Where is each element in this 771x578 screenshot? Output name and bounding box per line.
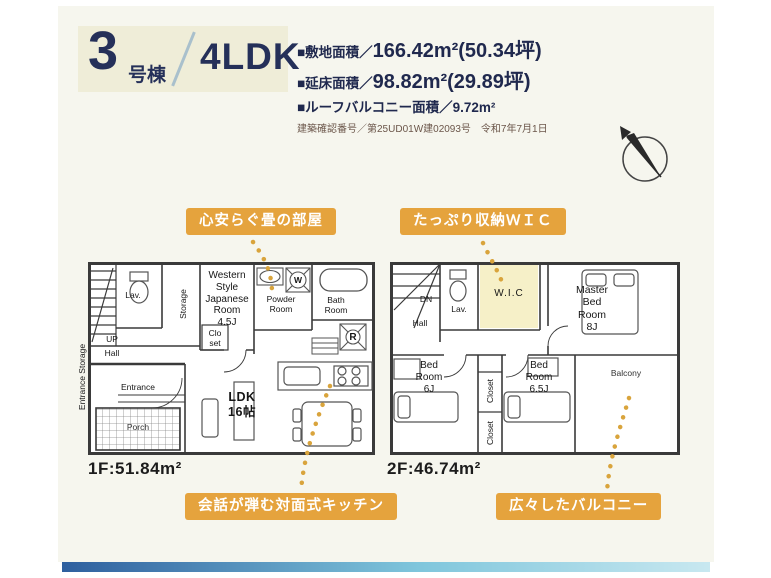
fridge-letter: R [340, 332, 366, 344]
room-label-powder-room: Powder Room [261, 294, 301, 314]
divider-slash [171, 32, 196, 87]
spec-roof-balcony: ■ルーフバルコニー面積／ 9.72m² [297, 96, 597, 116]
floorplan-2f: DN Hall Lav. W.I.C Master Bed Room 8J Be… [390, 262, 680, 455]
bathtub-icon [320, 269, 367, 291]
spec-floor-area: ■延床面積／ 98.82m²(29.89坪) [297, 65, 597, 94]
callout-wide-balcony: 広々したバルコニー [496, 493, 661, 520]
spec-site-area-value: 166.42m²(50.34坪) [373, 34, 542, 63]
spec-floor-area-value: 98.82m²(29.89坪) [373, 65, 531, 94]
floor-area-label-2f: 2F:46.74m² [387, 459, 481, 479]
washer-letter: W [286, 275, 310, 285]
layout-type: 4LDK [200, 36, 301, 78]
callout-open-kitchen: 会話が弾む対面式キッチン [185, 493, 397, 520]
spec-roof-balcony-label: ■ルーフバルコニー面積／ [297, 96, 453, 116]
unit-number: 3 [88, 22, 118, 81]
room-label-entrance-storage: Entrance Storage [77, 329, 87, 425]
room-label-lav-2f: Lav. [445, 304, 473, 314]
sink-icon [257, 268, 283, 285]
room-label-dn: DN [412, 294, 440, 304]
callout-tatami-room: 心安らぐ畳の部屋 [186, 208, 336, 235]
room-label-lav-1f: Lav. [116, 290, 150, 300]
room-label-bedroom-6j: Bed Room 6J [404, 360, 454, 395]
footer-gradient-bar [62, 562, 710, 572]
room-label-bath-room: Bath Room [314, 295, 358, 315]
room-label-wic: W.I.C [478, 288, 540, 300]
room-label-closet-1f: Clo set [202, 328, 228, 348]
room-label-bedroom-65j: Bed Room 6.5J [514, 360, 564, 395]
spec-floor-area-label: ■延床面積／ [297, 72, 373, 92]
unit-badge: 3 号棟 4LDK [78, 26, 288, 92]
unit-number-suffix: 号棟 [128, 60, 166, 87]
callout-wic-storage: たっぷり収納ＷＩＣ [400, 208, 566, 235]
floor-area-label-1f: 1F:51.84m² [88, 459, 182, 479]
toilet-icon-2f [450, 270, 466, 301]
property-specs: ■敷地面積／ 166.42m²(50.34坪) ■延床面積／ 98.82m²(2… [297, 34, 597, 135]
north-compass-icon [612, 124, 678, 188]
room-label-ldk: LDK 16帖 [220, 390, 264, 420]
room-label-closet-lower: Closet [485, 411, 495, 455]
room-label-closet-upper: Closet [485, 369, 495, 413]
floorplan-1f: Lav. Storage Western Style Japanese Room… [88, 262, 375, 455]
floorplan-flyer: 3 号棟 4LDK ■敷地面積／ 166.42m²(50.34坪) ■延床面積／… [0, 0, 771, 578]
room-label-storage: Storage [178, 274, 188, 334]
room-label-porch: Porch [96, 422, 180, 432]
room-label-up: UP [100, 334, 124, 344]
room-label-japanese-room: Western Style Japanese Room 4.5J [200, 270, 254, 329]
spec-roof-balcony-value: 9.72m² [453, 100, 496, 115]
spec-site-area-label: ■敷地面積／ [297, 41, 373, 61]
building-approval-number: 建築確認番号／第25UD01W建02093号 令和7年7月1日 [297, 120, 597, 135]
room-label-hall-1f: Hall [96, 348, 128, 358]
spec-site-area: ■敷地面積／ 166.42m²(50.34坪) [297, 34, 597, 63]
room-label-balcony: Balcony [596, 368, 656, 378]
room-label-hall-2f: Hall [404, 318, 436, 328]
room-label-master-bedroom: Master Bed Room 8J [552, 284, 632, 334]
room-label-entrance: Entrance [108, 382, 168, 392]
